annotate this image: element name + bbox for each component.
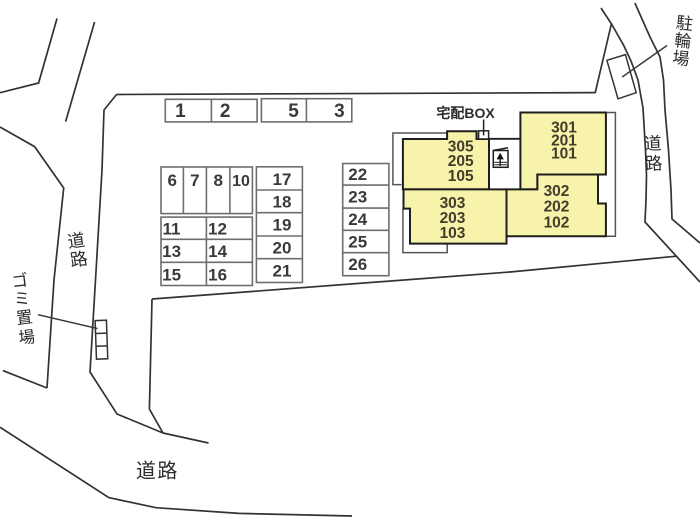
svg-text:17: 17 bbox=[273, 170, 292, 189]
svg-text:23: 23 bbox=[348, 188, 367, 207]
svg-text:6: 6 bbox=[167, 171, 176, 190]
svg-text:ゴ: ゴ bbox=[10, 270, 29, 292]
svg-text:5: 5 bbox=[288, 101, 299, 122]
svg-text:25: 25 bbox=[348, 232, 367, 251]
svg-text:場: 場 bbox=[671, 48, 690, 69]
svg-text:11: 11 bbox=[163, 220, 181, 239]
svg-text:14: 14 bbox=[208, 242, 227, 261]
svg-text:102: 102 bbox=[544, 214, 570, 231]
svg-text:宅配BOX: 宅配BOX bbox=[436, 105, 495, 121]
svg-text:1: 1 bbox=[175, 101, 186, 122]
svg-text:21: 21 bbox=[273, 262, 292, 281]
svg-text:12: 12 bbox=[208, 220, 227, 239]
svg-text:19: 19 bbox=[273, 215, 292, 234]
svg-text:3: 3 bbox=[334, 101, 345, 122]
svg-text:302: 302 bbox=[544, 183, 570, 200]
svg-text:置: 置 bbox=[15, 308, 34, 328]
svg-text:101: 101 bbox=[551, 146, 577, 163]
svg-text:15: 15 bbox=[162, 265, 181, 284]
svg-text:105: 105 bbox=[448, 168, 474, 185]
svg-text:24: 24 bbox=[348, 210, 367, 229]
svg-text:202: 202 bbox=[544, 199, 570, 216]
svg-text:8: 8 bbox=[213, 171, 222, 190]
svg-text:道路: 道路 bbox=[136, 460, 179, 483]
svg-text:103: 103 bbox=[440, 225, 466, 242]
svg-text:22: 22 bbox=[348, 165, 367, 184]
svg-text:場: 場 bbox=[17, 327, 36, 348]
svg-text:16: 16 bbox=[208, 265, 227, 284]
svg-text:ミ: ミ bbox=[13, 289, 32, 309]
svg-text:18: 18 bbox=[273, 192, 292, 211]
svg-text:20: 20 bbox=[273, 238, 292, 257]
svg-text:26: 26 bbox=[348, 255, 367, 274]
svg-text:道: 道 bbox=[644, 133, 662, 154]
svg-text:2: 2 bbox=[220, 101, 231, 122]
svg-text:10: 10 bbox=[232, 173, 250, 190]
svg-text:13: 13 bbox=[162, 242, 181, 261]
svg-text:路: 路 bbox=[645, 153, 664, 174]
svg-text:7: 7 bbox=[190, 171, 199, 190]
svg-text:路: 路 bbox=[69, 248, 90, 270]
